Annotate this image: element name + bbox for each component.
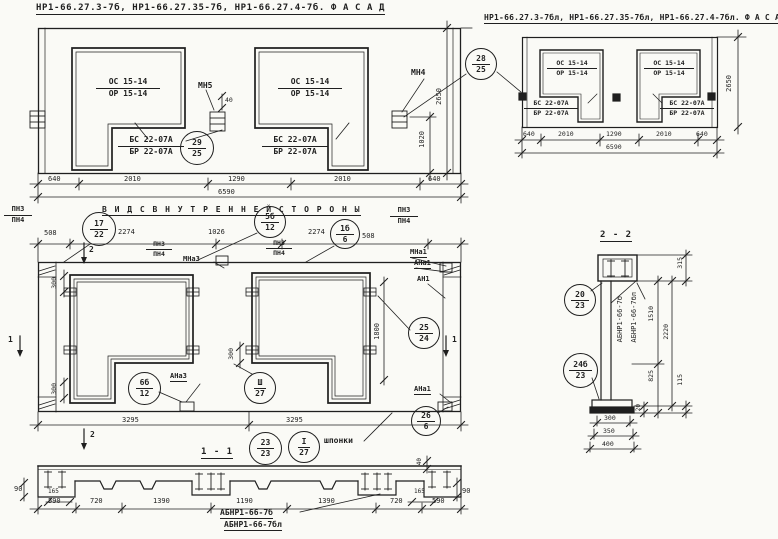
callout-sheet: 27 — [255, 389, 265, 398]
callout-6b-12: 6б 12 — [128, 372, 161, 405]
dim-115-label: 115 — [677, 374, 684, 386]
section-1-1-title: 1 - 1 — [201, 448, 233, 459]
mark-pn4: ПН4 — [266, 249, 292, 257]
mark-mn4: МН4 — [411, 69, 425, 77]
mark-pn4: ПН4 — [146, 250, 172, 258]
callout-sheet: 23 — [261, 449, 271, 458]
dim-1510-label: 1510 — [648, 306, 655, 322]
dim-20-label: 20 — [636, 404, 642, 411]
panel-mark-pn3-pn4: ПН3 ПН4 — [146, 241, 172, 258]
facade-right-window2-opening-mark: ОС 15-14 ОР 15-14 — [644, 60, 694, 77]
callout-28-25: 28 25 — [465, 48, 497, 80]
section-1-1-profile — [38, 466, 461, 497]
opening-frame-mark: ОР 15-14 — [644, 69, 694, 77]
dim-label: 2274 — [118, 229, 135, 236]
dim-label: 1290 — [606, 131, 622, 138]
section-mark-1-label: 1 — [452, 336, 457, 344]
dim-label: 508 — [362, 233, 375, 240]
dim-300-label: 300 — [51, 383, 58, 395]
dim-label: 300 — [604, 415, 616, 422]
callout-26-6: 26 6 — [411, 406, 441, 436]
opening-sash-mark: ОС 15-14 — [547, 60, 597, 69]
dim-165-label: 165 — [48, 489, 59, 495]
dim-label: 720 — [390, 498, 403, 505]
callout-sheet: 12 — [265, 223, 275, 232]
dim-1800-label: 1800 — [374, 323, 381, 340]
dim-height-label: 2650 — [436, 88, 443, 105]
facade-right-title: НР1-66.27.3-7бл, НР1-66.27.35-7бл, НР1-6… — [484, 14, 778, 24]
dim-40-plate: 40 — [225, 97, 233, 104]
dim-90-label: 90 — [462, 488, 470, 495]
callout-1b-6: 1б 6 — [330, 219, 360, 249]
dim-label: 1190 — [236, 498, 253, 505]
dim-label: 1390 — [153, 498, 170, 505]
sill-block-mark: БС 22-07А — [660, 100, 714, 109]
dim-label: 640 — [48, 176, 61, 183]
callout-i-27: I 27 — [288, 431, 320, 463]
callout-23-23: 23 23 — [249, 432, 282, 465]
dim-label: 2010 — [656, 131, 672, 138]
callout-number: 1б — [336, 225, 354, 235]
facade-left-title: НР1-66.27.3-7б, НР1-66.27.35-7б, НР1-66.… — [36, 4, 385, 15]
section-2-2-panel-mark-l: АБНР1-66-7бл — [631, 292, 638, 343]
opening-frame-mark: ОР 15-14 — [547, 69, 597, 77]
dim-label: 590 — [48, 498, 61, 505]
facade-left-window1-opening-mark: ОС 15-14 ОР 15-14 — [96, 78, 160, 99]
opening-sash-mark: ОС 15-14 — [96, 78, 160, 89]
callout-number: 17 — [90, 220, 108, 230]
dim-300-label: 300 — [51, 277, 58, 289]
dim-height-label: 2650 — [726, 75, 733, 92]
section-2-2-panel-mark: АБНР1-66-7б — [617, 296, 624, 342]
callout-25-24: 25 24 — [408, 317, 440, 349]
dim-label: 720 — [90, 498, 103, 505]
dim-label: 2274 — [308, 229, 325, 236]
sill-block-mark: БС 22-07А — [262, 136, 328, 147]
facade-left-sill-block2-mark: БС 22-07А БР 22-07А — [262, 136, 328, 157]
callout-20-23: 20 23 — [564, 284, 596, 316]
callout-iii-27: Ш 27 — [244, 372, 276, 404]
mark-pn3: ПН3 — [4, 206, 32, 216]
dim-total-label: 6590 — [606, 144, 622, 151]
opening-sash-mark: ОС 15-14 — [278, 78, 342, 89]
section-mark-2-label: 2 — [90, 431, 95, 439]
opening-sash-mark: ОС 15-14 — [644, 60, 694, 69]
mark-pn4: ПН4 — [390, 217, 418, 226]
sill-block-mark: БС 22-07А — [524, 100, 578, 109]
callout-number: 28 — [472, 55, 490, 65]
mark-pn4: ПН4 — [4, 216, 32, 225]
drawing-sheet: НР1-66.27.3-7б, НР1-66.27.35-7б, НР1-66.… — [0, 0, 778, 539]
callout-number: 5б — [261, 213, 279, 223]
dim-90-label: 90 — [14, 486, 22, 493]
section-1-1-panel-mark: АБНР1-66-7б — [220, 509, 273, 519]
dim-label: 2010 — [124, 176, 141, 183]
dim-label: 1026 — [208, 229, 225, 236]
callout-sheet: 6 — [343, 235, 348, 244]
sill-block-mark: БР 22-07А — [118, 147, 184, 157]
facade-left-window2-opening-mark: ОС 15-14 ОР 15-14 — [278, 78, 342, 99]
panel-mark-pn3-pn4: ПН3 ПН4 — [4, 206, 32, 224]
facade-right-window1-opening-mark: ОС 15-14 ОР 15-14 — [547, 60, 597, 77]
callout-sheet: 24 — [419, 334, 429, 343]
dim-label: 3295 — [286, 417, 303, 424]
dim-label: 1290 — [228, 176, 245, 183]
dim-165-label: 165 — [414, 489, 425, 495]
sill-block-mark: БС 22-07А — [118, 136, 184, 147]
mark-mna3: МНа3 — [183, 256, 200, 263]
dim-2220-label: 2220 — [663, 324, 670, 340]
callout-sheet: 27 — [299, 448, 309, 457]
opening-frame-mark: ОР 15-14 — [96, 89, 160, 99]
label-shponki: шпонки — [324, 437, 353, 445]
mark-mn5: МН5 — [198, 82, 212, 90]
dim-label: 508 — [44, 230, 57, 237]
opening-frame-mark: ОР 15-14 — [278, 89, 342, 99]
mark-an1: АН1 — [417, 276, 430, 283]
callout-sheet: 12 — [140, 389, 150, 398]
callout-sheet: 22 — [94, 230, 104, 239]
facade-right-sill-block1-mark: БС 22-07А БР 22-07А — [524, 100, 578, 117]
mark-mna1: МНа1 — [410, 249, 427, 258]
dim-label: 2010 — [558, 131, 574, 138]
callout-sheet: 23 — [576, 371, 586, 380]
callout-number: 29 — [188, 139, 206, 149]
callout-number: 20 — [571, 291, 589, 301]
callout-sheet: 6 — [424, 422, 429, 431]
dim-315-label: 315 — [677, 257, 684, 269]
dim-40-label: 40 — [417, 458, 423, 465]
section-mark-2-label: 2 — [89, 246, 94, 254]
dim-label: 640 — [523, 131, 535, 138]
mark-ana1: АНа1 — [414, 386, 431, 395]
mark-pn3: ПН3 — [146, 241, 172, 250]
callout-sheet: 23 — [575, 301, 585, 310]
callout-number: 23 — [257, 439, 275, 449]
sill-block-mark: БР 22-07А — [524, 109, 578, 117]
mark-pn3: ПН3 — [266, 240, 292, 249]
callout-sheet: 25 — [476, 65, 486, 74]
callout-number: 24б — [569, 361, 591, 371]
callout-number: Ш — [254, 379, 267, 389]
callout-number: 26 — [417, 412, 435, 422]
facade-right-sill-block2-mark: БС 22-07А БР 22-07А — [660, 100, 714, 117]
panel-mark-pn3-pn4: ПН3 ПН4 — [266, 240, 292, 257]
callout-sheet: 25 — [192, 149, 202, 158]
section-2-2-title: 2 - 2 — [600, 231, 632, 242]
sill-block-mark: БР 22-07А — [262, 147, 328, 157]
section-mark-1-label: 1 — [8, 336, 13, 344]
callout-29-25: 29 25 — [180, 131, 214, 165]
mark-pn3: ПН3 — [390, 207, 418, 217]
dim-label: 350 — [603, 428, 615, 435]
dim-label: 2010 — [334, 176, 351, 183]
dim-label: 400 — [602, 441, 614, 448]
callout-24b-23: 24б 23 — [563, 353, 598, 388]
mark-ana1: АНа1 — [414, 260, 431, 269]
callout-number: 6б — [136, 379, 154, 389]
callout-5b-12: 5б 12 — [254, 206, 286, 238]
dim-label: 640 — [696, 131, 708, 138]
callout-number: I — [298, 438, 311, 448]
mark-ana3: АНа3 — [170, 373, 187, 382]
dim-label: 3295 — [122, 417, 139, 424]
dim-label: 640 — [428, 176, 441, 183]
dim-label: 590 — [432, 498, 445, 505]
section-1-1-panel-mark-l: АБНР1-66-7бл — [224, 521, 282, 531]
facade-left-sill-block1-mark: БС 22-07А БР 22-07А — [118, 136, 184, 157]
panel-mark-pn3-pn4: ПН3 ПН4 — [390, 207, 418, 225]
inner-view-dimensions — [30, 233, 468, 441]
dim-1020-label: 1020 — [419, 131, 426, 148]
sill-block-mark: БР 22-07А — [660, 109, 714, 117]
section-1-1-dimensions — [21, 456, 469, 514]
callout-number: 25 — [415, 324, 433, 334]
dim-825-label: 825 — [648, 370, 655, 382]
inner-view-title: В И Д С В Н У Т Р Е Н Н Е Й С Т О Р О Н … — [102, 206, 361, 216]
callout-17-22: 17 22 — [82, 212, 116, 246]
dim-300-label: 300 — [228, 348, 235, 360]
dim-total-label: 6590 — [218, 189, 235, 196]
dim-label: 1390 — [318, 498, 335, 505]
